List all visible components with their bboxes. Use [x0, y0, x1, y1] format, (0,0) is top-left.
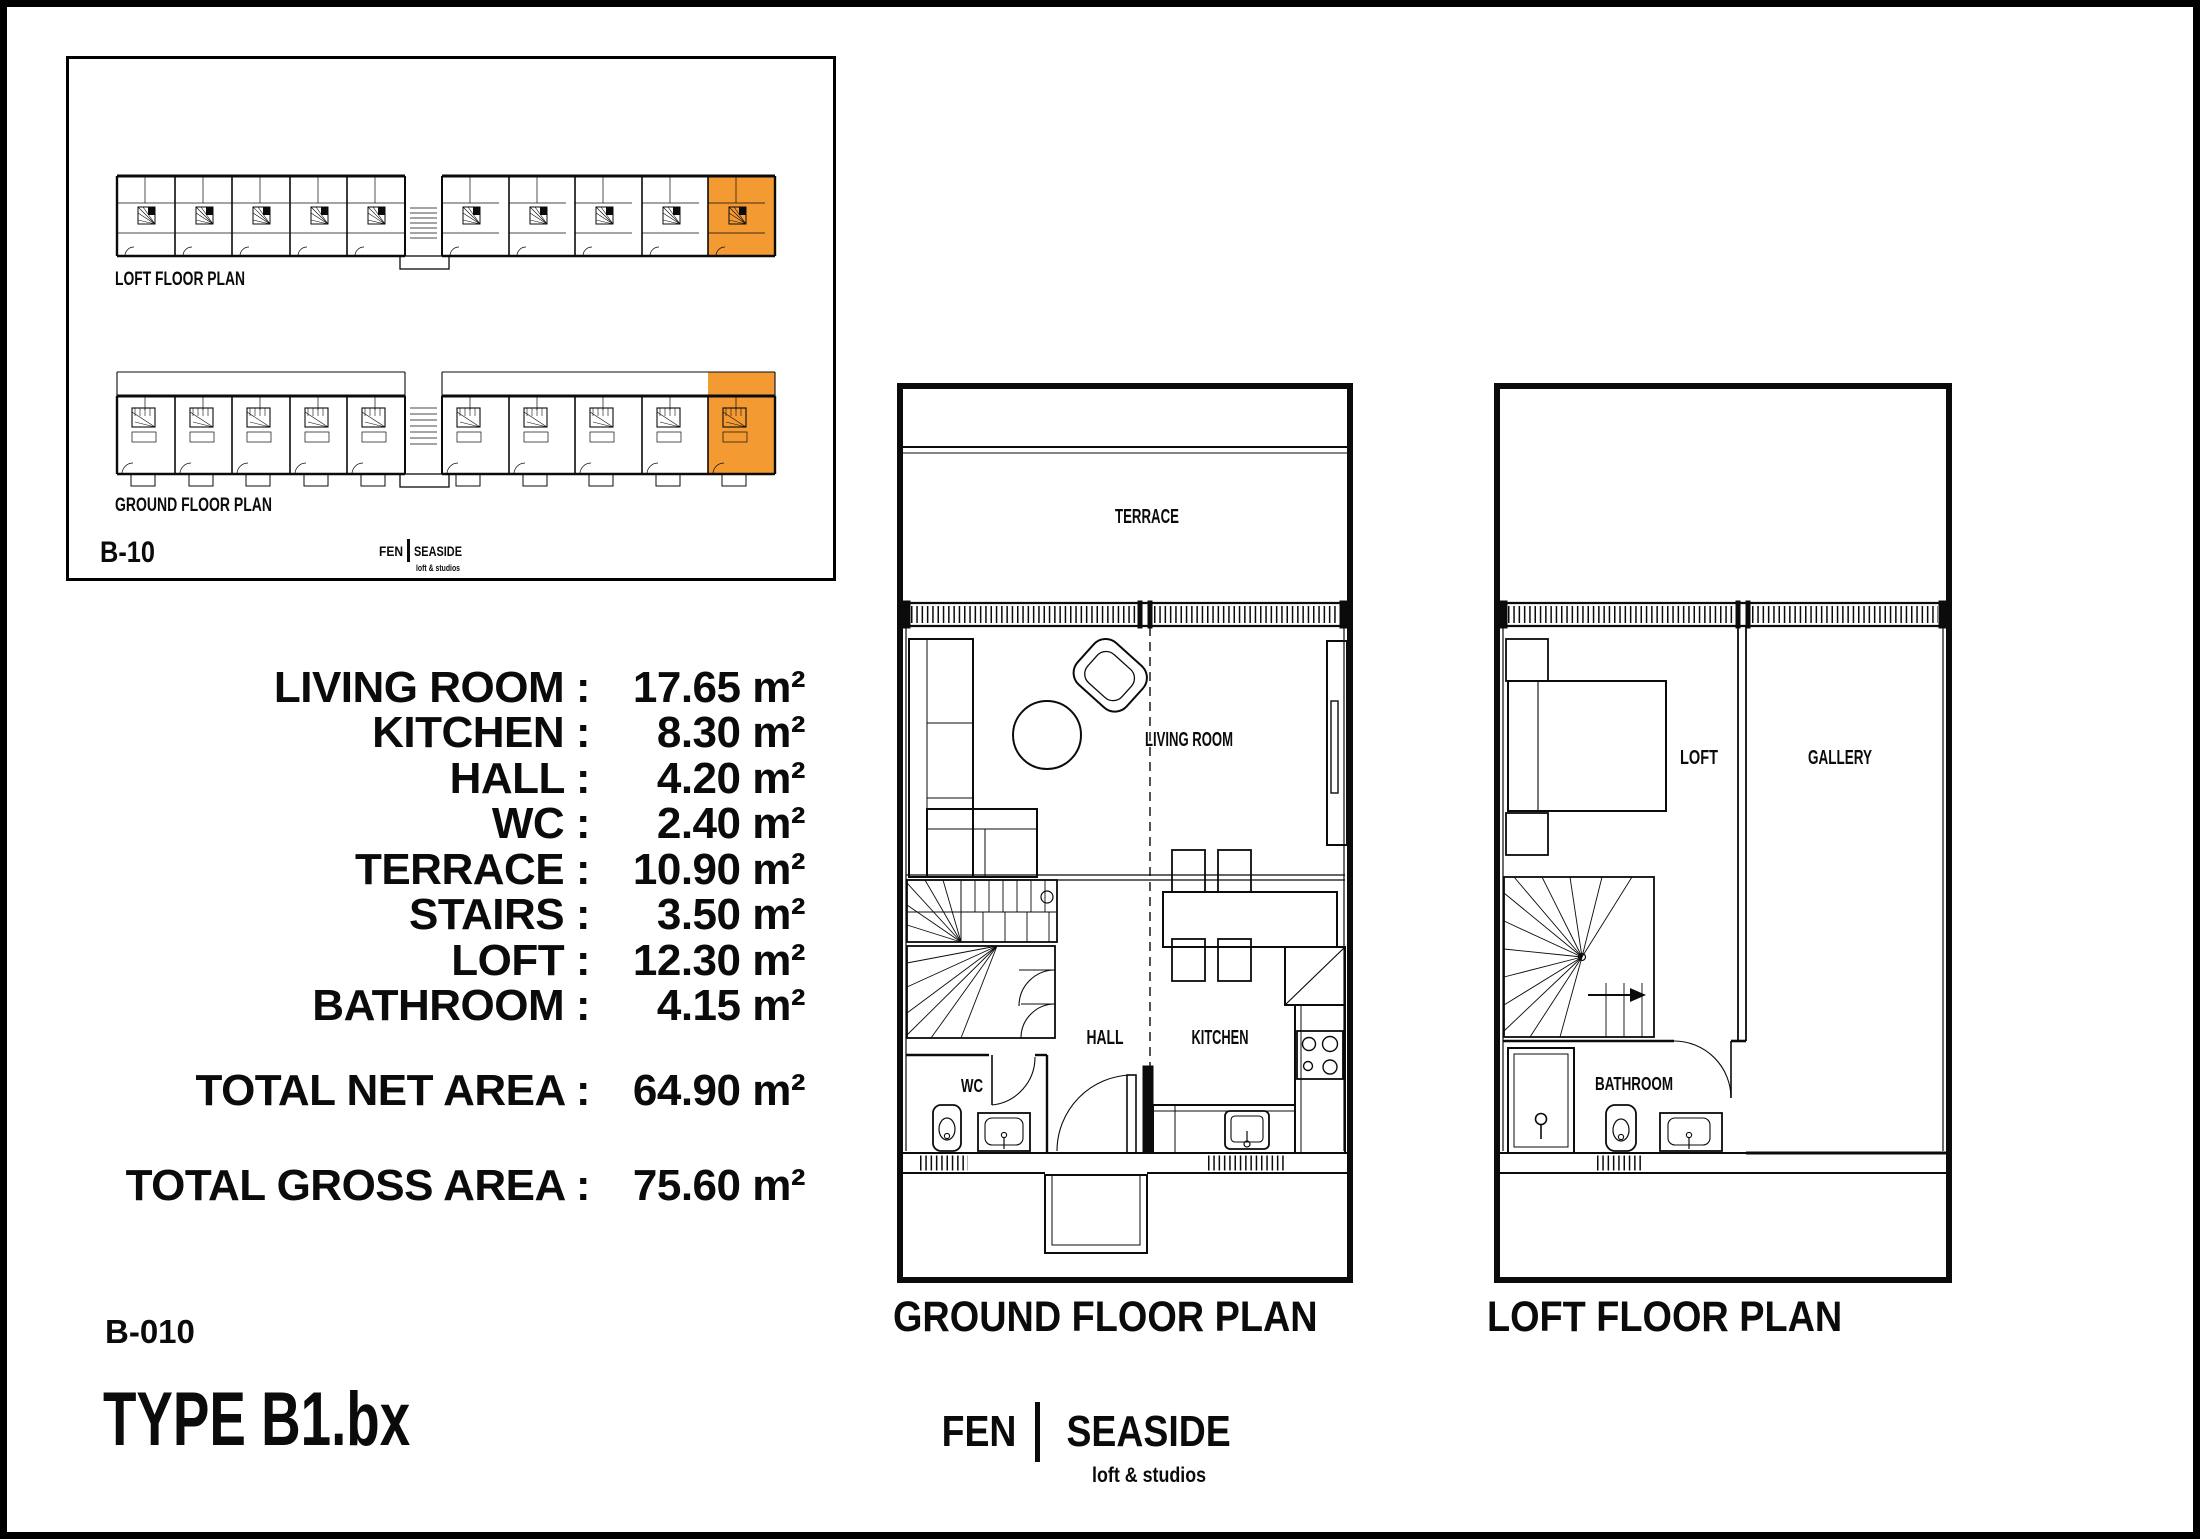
- plan-sheet: LOFT FLOOR PLAN: [0, 0, 2200, 1539]
- sheet-border: [0, 0, 2200, 1539]
